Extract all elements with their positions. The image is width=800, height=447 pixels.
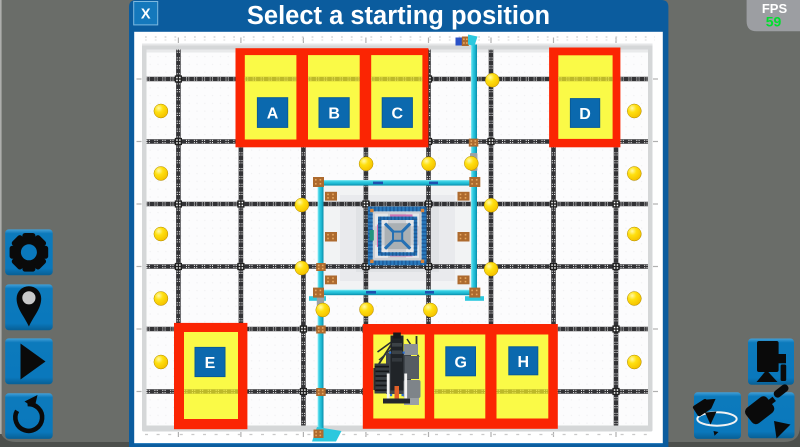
- svg-text:E: E: [205, 355, 216, 372]
- svg-text:X: X: [141, 7, 151, 23]
- svg-text:B: B: [328, 106, 340, 123]
- svg-text:D: D: [579, 106, 591, 123]
- svg-text:H: H: [518, 354, 530, 371]
- svg-text:C: C: [392, 106, 404, 123]
- svg-text:Select a starting position: Select a starting position: [247, 2, 550, 30]
- svg-text:A: A: [267, 106, 279, 123]
- svg-text:59: 59: [766, 13, 782, 29]
- svg-text:G: G: [454, 354, 466, 371]
